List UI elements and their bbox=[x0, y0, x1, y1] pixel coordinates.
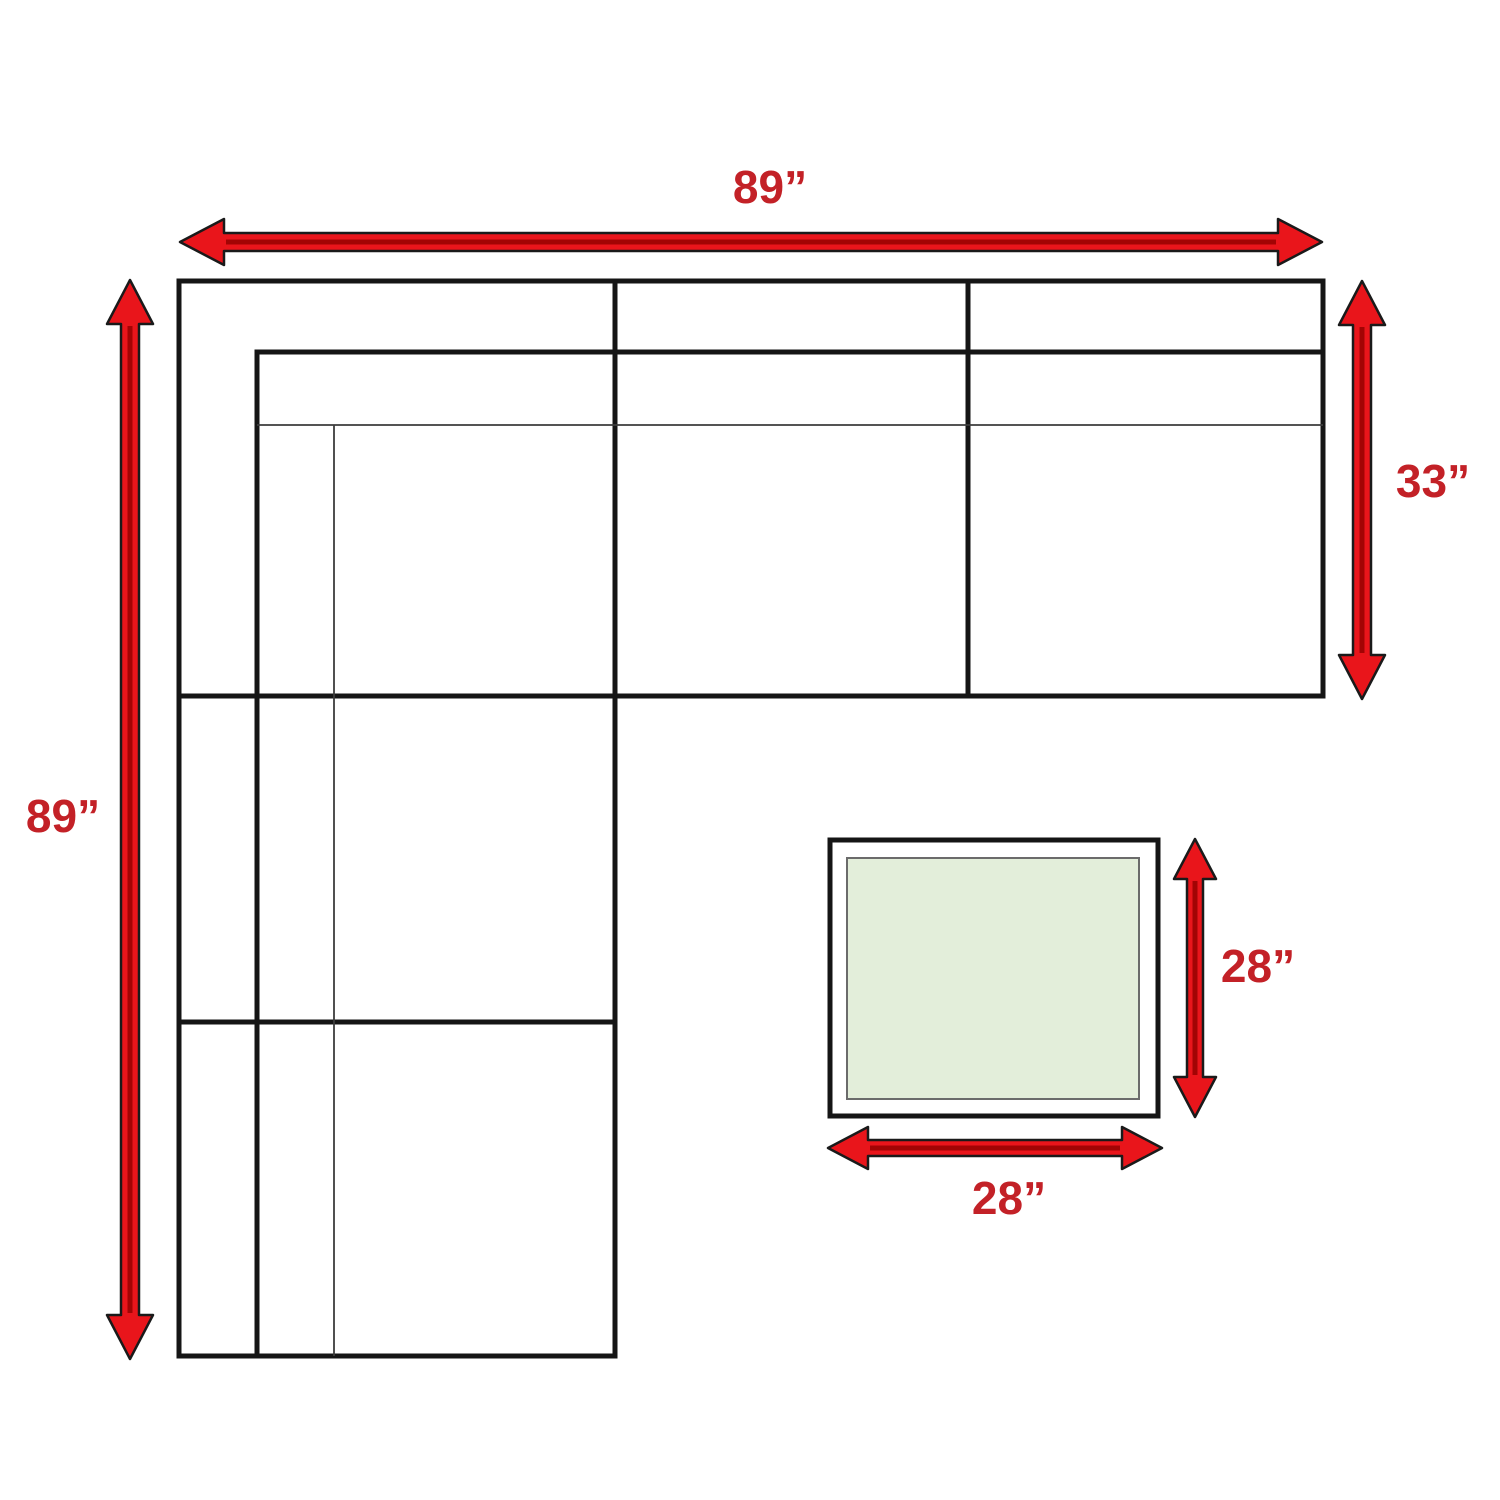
sofa-outer-outline bbox=[179, 281, 1323, 1356]
sofa-dimension-diagram: 89” 89” 33” 28” 28” bbox=[0, 0, 1500, 1500]
label-ottoman-depth: 28” bbox=[1221, 943, 1295, 989]
sofa-width-arrow bbox=[180, 219, 1322, 265]
sofa-depth-arrow bbox=[107, 280, 153, 1359]
floorplan-graphic bbox=[0, 0, 1500, 1500]
label-sofa-depth: 89” bbox=[26, 793, 100, 839]
ottoman-cushion bbox=[847, 858, 1139, 1099]
label-sofa-width: 89” bbox=[733, 164, 807, 210]
section-depth-arrow bbox=[1339, 281, 1385, 699]
label-section-depth: 33” bbox=[1396, 458, 1470, 504]
ottoman-depth-arrow bbox=[1174, 839, 1216, 1117]
label-ottoman-width: 28” bbox=[972, 1175, 1046, 1221]
backrest-line bbox=[257, 352, 1323, 1356]
ottoman-width-arrow bbox=[828, 1127, 1162, 1169]
